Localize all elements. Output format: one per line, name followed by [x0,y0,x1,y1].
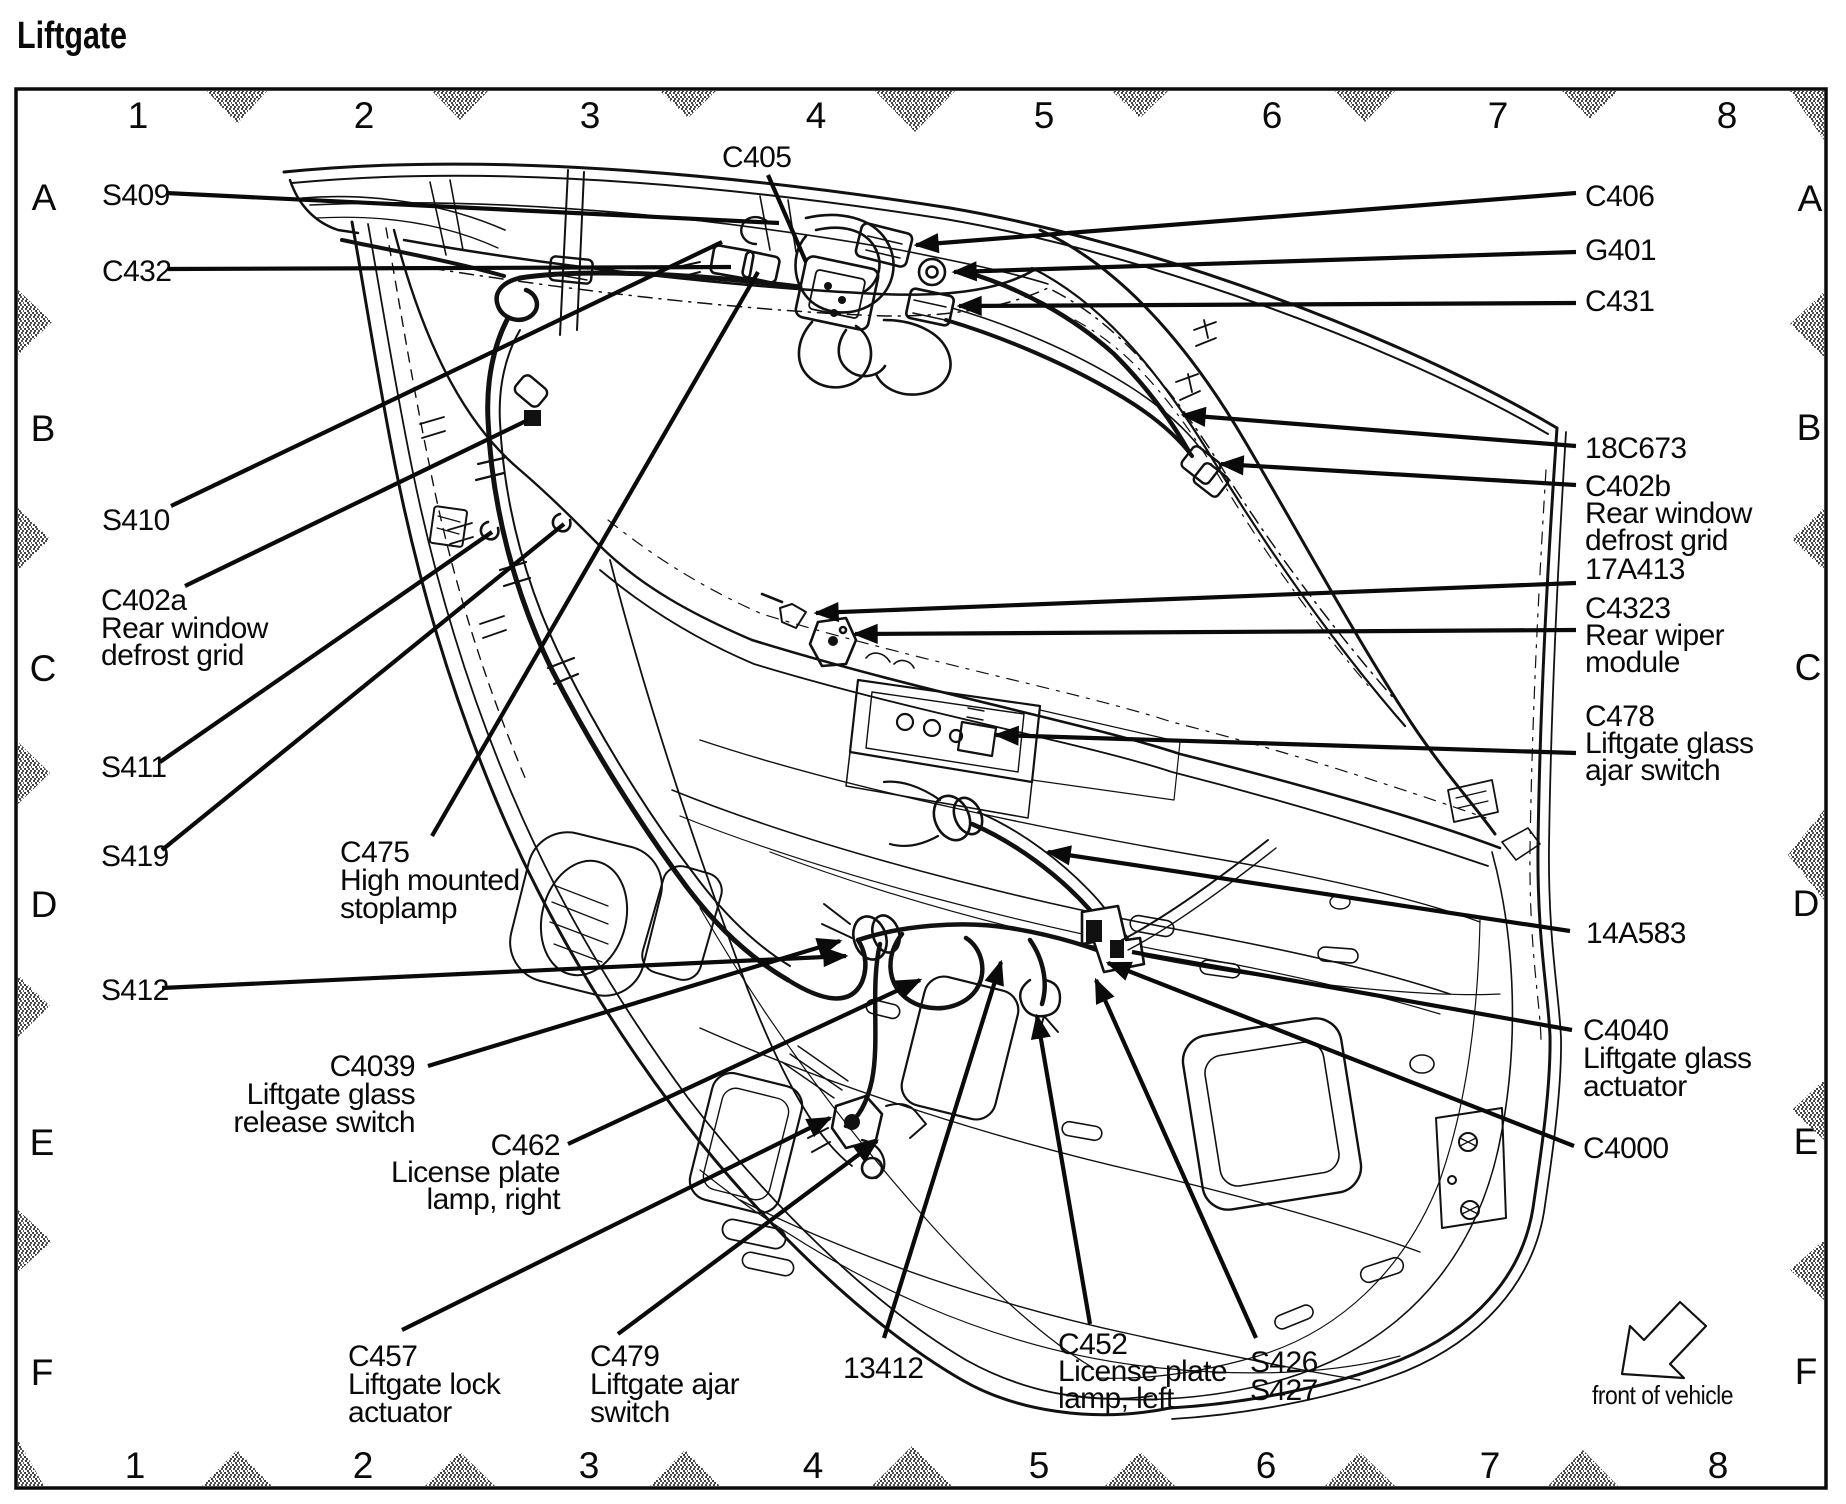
svg-text:actuator: actuator [348,1396,452,1429]
svg-text:lamp, right: lamp, right [427,1183,562,1216]
svg-text:C431: C431 [1585,285,1654,318]
svg-text:lamp, left: lamp, left [1058,1382,1175,1415]
svg-text:C405: C405 [722,141,791,174]
svg-text:14A583: 14A583 [1586,917,1686,950]
svg-text:E: E [30,1122,55,1163]
svg-text:S419: S419 [101,840,169,873]
svg-text:C432: C432 [102,255,171,288]
svg-text:4: 4 [806,95,827,136]
svg-text:A: A [32,177,57,218]
svg-text:Liftgate: Liftgate [17,15,127,57]
svg-text:S411: S411 [101,751,166,784]
svg-text:release switch: release switch [233,1106,415,1139]
svg-text:F: F [31,1352,54,1393]
svg-text:front of vehicle: front of vehicle [1592,1380,1733,1410]
svg-text:S409: S409 [102,179,170,212]
svg-text:B: B [1797,407,1822,448]
svg-text:6: 6 [1262,95,1283,136]
svg-text:F: F [1795,1351,1818,1392]
svg-text:5: 5 [1029,1445,1050,1486]
svg-text:8: 8 [1717,95,1738,136]
svg-text:7: 7 [1480,1445,1501,1486]
svg-text:8: 8 [1708,1445,1729,1486]
svg-text:C406: C406 [1585,180,1654,213]
svg-text:C: C [1795,647,1822,688]
svg-text:3: 3 [580,95,601,136]
svg-text:7: 7 [1488,95,1509,136]
svg-text:2: 2 [354,95,375,136]
svg-text:switch: switch [590,1396,670,1429]
svg-text:A: A [1798,178,1823,219]
svg-text:S427: S427 [1250,1374,1318,1407]
svg-text:C4000: C4000 [1583,1132,1668,1165]
svg-text:1: 1 [125,1445,146,1486]
svg-text:5: 5 [1034,95,1055,136]
svg-text:2: 2 [353,1445,374,1486]
svg-text:18C673: 18C673 [1585,432,1687,465]
svg-text:4: 4 [803,1445,824,1486]
svg-text:D: D [31,884,58,925]
svg-text:stoplamp: stoplamp [340,892,457,925]
svg-text:actuator: actuator [1583,1070,1687,1103]
svg-text:17A413: 17A413 [1585,553,1685,586]
svg-text:B: B [31,408,56,449]
svg-text:module: module [1585,646,1680,679]
svg-text:defrost grid: defrost grid [101,639,244,672]
svg-text:13412: 13412 [843,1352,923,1385]
svg-text:ajar switch: ajar switch [1585,754,1720,787]
svg-text:C: C [30,648,57,689]
svg-text:G401: G401 [1585,234,1656,267]
svg-text:3: 3 [579,1445,600,1486]
svg-text:1: 1 [128,95,149,136]
svg-text:6: 6 [1256,1445,1277,1486]
svg-text:S412: S412 [101,974,169,1007]
svg-text:S410: S410 [102,504,170,537]
